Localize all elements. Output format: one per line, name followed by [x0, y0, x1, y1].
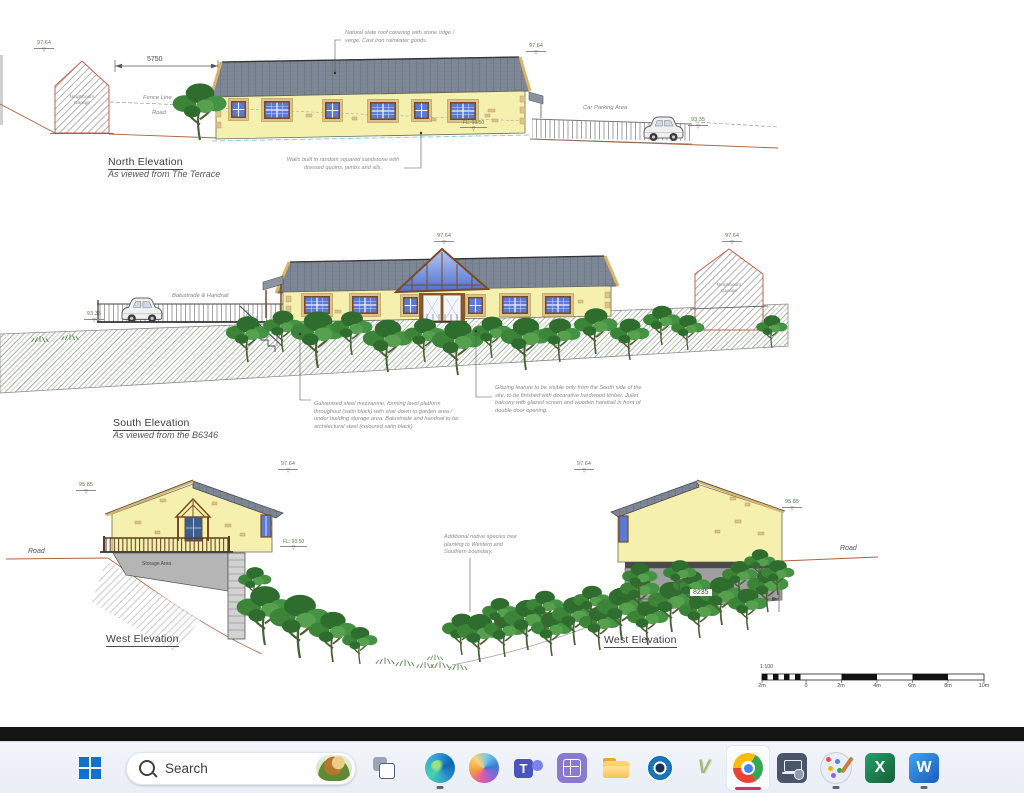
datum-icon: ▽	[434, 241, 454, 246]
datum-icon: ▽	[460, 127, 487, 132]
scale-tick: 0	[795, 683, 817, 689]
south-elevation-title: South Elevation	[113, 417, 190, 429]
south-elevation-subtitle: As viewed from the B6346	[113, 430, 218, 440]
datum-marker: 97.64▽	[278, 462, 298, 474]
search-label: Search	[165, 761, 316, 776]
scale-tick: 2m	[751, 683, 773, 689]
word-button[interactable]: W	[902, 745, 946, 791]
scale-tick: 6m	[901, 683, 923, 689]
teams-button[interactable]: T	[506, 745, 550, 791]
datum-marker: 97.64▽	[526, 44, 546, 56]
datum-icon: ▽	[84, 319, 104, 324]
balustrade-label: Balustrade & Handrail	[172, 293, 228, 299]
garage-label: Neighbours Garage	[62, 95, 102, 107]
edge-button[interactable]	[418, 745, 462, 791]
chrome-button[interactable]	[726, 745, 770, 791]
device-security-button[interactable]	[770, 745, 814, 791]
windows-logo-icon	[79, 757, 101, 779]
task-view-icon	[373, 757, 395, 779]
datum-marker: 95.85▽	[76, 483, 96, 495]
running-indicator	[833, 786, 840, 789]
datum-icon: ▽	[722, 241, 742, 246]
running-indicator	[921, 786, 928, 789]
running-indicator	[437, 786, 444, 789]
taskbar: Search T V	[0, 741, 1024, 793]
copilot-icon	[469, 753, 499, 783]
file-explorer-button[interactable]	[594, 745, 638, 791]
west-elevation-title: West Elevation	[106, 633, 179, 645]
west-elevation-title: West Elevation	[604, 634, 677, 646]
device-security-icon	[777, 753, 807, 783]
window-edge	[0, 727, 1024, 742]
datum-marker: 95.85▽	[782, 500, 802, 512]
v-app-icon: V	[689, 753, 719, 783]
glazing-note: Glazing feature to be visible only from …	[495, 385, 645, 415]
copilot-button[interactable]	[462, 745, 506, 791]
fence-line-label: Fence Line	[143, 95, 172, 101]
edge-icon	[425, 753, 455, 783]
floor-level-marker: FL: 93.50▽	[280, 540, 307, 552]
dimension-label: 8235	[690, 589, 712, 596]
excel-icon: X	[865, 753, 895, 783]
datum-icon: ▽	[278, 469, 298, 474]
north-elevation-subtitle: As viewed from The Terrace	[108, 169, 220, 179]
datum-icon: ▽	[526, 51, 546, 56]
garage-label: Neighbours Garage	[709, 283, 749, 295]
active-indicator	[735, 787, 761, 791]
search-daily-image	[316, 755, 352, 781]
chrome-icon	[733, 753, 763, 783]
elevation-drawing-sheet: 97.64▽ 97.64▽ 93.35▽ FL: 93.50▽ 5750 Nei…	[0, 0, 1024, 727]
search-icon	[139, 760, 155, 776]
dimension-label: 5750	[147, 56, 163, 63]
car-parking-label: Car Parking Area	[583, 105, 627, 111]
paint-button[interactable]	[814, 745, 858, 791]
datum-icon: ▽	[34, 48, 54, 53]
datum-icon: ▽	[782, 507, 802, 512]
storage-area-label: Storage Area	[142, 561, 171, 567]
grid-app-icon	[557, 753, 587, 783]
datum-marker: 97.64▽	[722, 234, 742, 246]
ring-app-icon	[645, 753, 675, 783]
datum-marker: 93.35▽	[84, 312, 104, 324]
datum-icon: ▽	[688, 125, 708, 130]
scale-tick: 4m	[866, 683, 888, 689]
datum-icon: ▽	[280, 546, 307, 551]
scale-tick: 8m	[937, 683, 959, 689]
datum-marker: 93.35▽	[688, 118, 708, 130]
desktop-screen: 97.64▽ 97.64▽ 93.35▽ FL: 93.50▽ 5750 Nei…	[0, 0, 1024, 793]
datum-marker: 97.64▽	[34, 41, 54, 53]
widgets-grid-button[interactable]	[550, 745, 594, 791]
ring-app-button[interactable]	[638, 745, 682, 791]
road-label: Road	[28, 548, 45, 555]
datum-marker: 97.64▽	[574, 462, 594, 474]
task-view-button[interactable]	[362, 745, 406, 791]
search-box[interactable]: Search	[126, 752, 356, 785]
word-icon: W	[909, 753, 939, 783]
scale-tick: 2m	[830, 683, 852, 689]
mezzanine-note: Galvanised steel mezzanine, forming leve…	[314, 401, 466, 431]
datum-marker: 97.64▽	[434, 234, 454, 246]
north-elevation-title: North Elevation	[108, 156, 183, 168]
planting-note: Additional native species tree planting …	[444, 534, 524, 557]
scale-tick: 10m	[973, 683, 995, 689]
road-label: Road	[152, 110, 166, 116]
file-explorer-icon	[601, 753, 631, 783]
paint-icon	[820, 752, 852, 784]
datum-icon: ▽	[574, 469, 594, 474]
v-app-button[interactable]: V	[682, 745, 726, 791]
floor-level-marker: FL: 93.50▽	[460, 121, 487, 133]
scale-ratio: 1:100	[760, 664, 773, 670]
start-button[interactable]	[68, 745, 112, 791]
walls-note: Walls built in random squared sandstone …	[283, 157, 403, 172]
roof-note: Natural slate roof covering with stone r…	[345, 30, 459, 45]
excel-button[interactable]: X	[858, 745, 902, 791]
datum-icon: ▽	[76, 490, 96, 495]
road-label: Road	[840, 545, 857, 552]
teams-icon: T	[513, 753, 543, 783]
